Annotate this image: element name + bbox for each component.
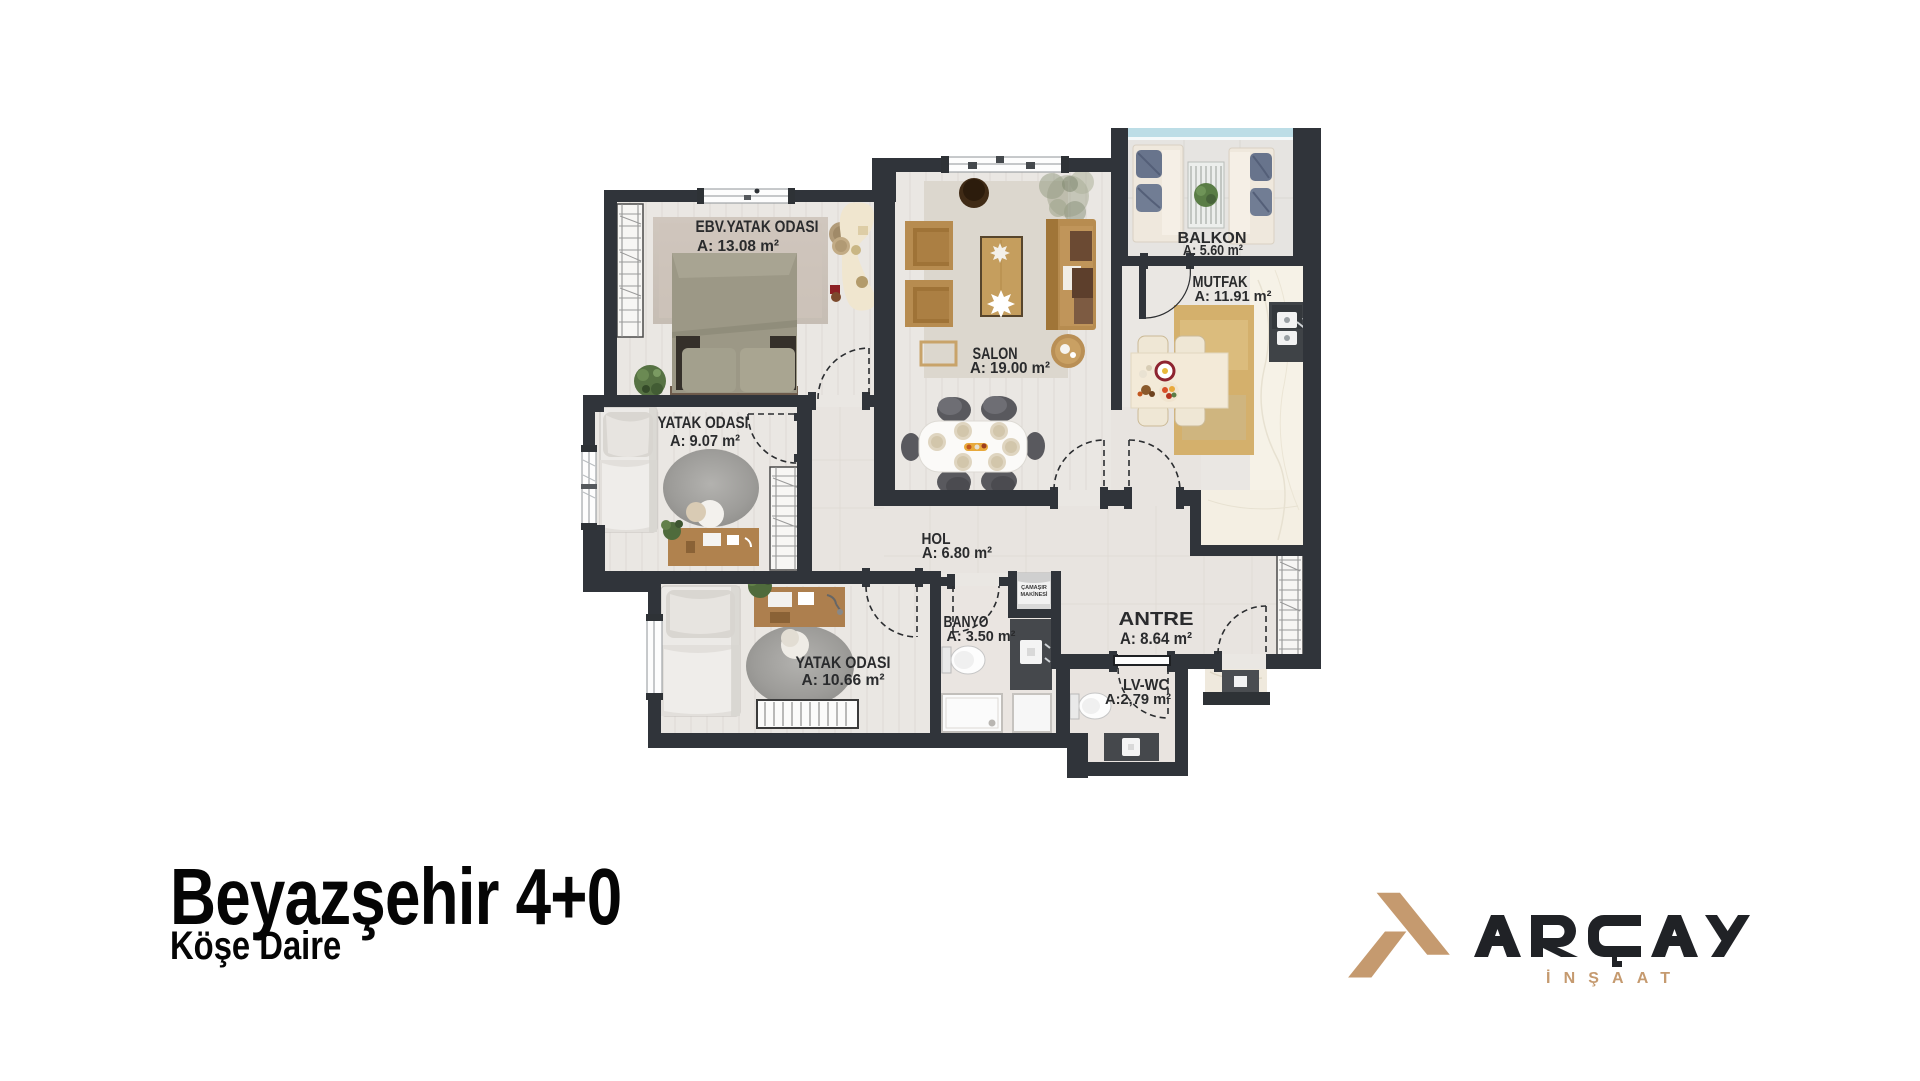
svg-text:A: 13.08 m²: A: 13.08 m² bbox=[697, 238, 779, 255]
svg-text:A: 6.80 m²: A: 6.80 m² bbox=[922, 545, 992, 562]
svg-text:ANTRE: ANTRE bbox=[1119, 609, 1194, 629]
svg-text:ÇAMAŞIR: ÇAMAŞIR bbox=[1021, 585, 1047, 591]
svg-text:Köşe Daire: Köşe Daire bbox=[170, 923, 341, 968]
svg-text:A: 3.50 m²: A: 3.50 m² bbox=[947, 628, 1016, 645]
svg-text:YATAK ODASI: YATAK ODASI bbox=[796, 653, 891, 672]
svg-text:A:2,79 m²: A:2,79 m² bbox=[1105, 691, 1171, 708]
svg-text:A: 10.66 m²: A: 10.66 m² bbox=[802, 672, 885, 689]
svg-text:A: 8.64 m²: A: 8.64 m² bbox=[1120, 629, 1192, 648]
svg-text:EBV.YATAK ODASI: EBV.YATAK ODASI bbox=[696, 217, 819, 236]
svg-text:A: 19.00 m²: A: 19.00 m² bbox=[970, 360, 1050, 377]
svg-text:MAKİNESİ: MAKİNESİ bbox=[1021, 591, 1048, 598]
svg-text:YATAK ODASI: YATAK ODASI bbox=[658, 413, 749, 432]
svg-text:A: 11.91 m²: A: 11.91 m² bbox=[1195, 288, 1272, 305]
svg-text:İNŞAAT: İNŞAAT bbox=[1546, 969, 1670, 987]
svg-text:A: 9.07 m²: A: 9.07 m² bbox=[670, 433, 740, 450]
svg-text:A: 5.60 m²: A: 5.60 m² bbox=[1183, 242, 1243, 259]
